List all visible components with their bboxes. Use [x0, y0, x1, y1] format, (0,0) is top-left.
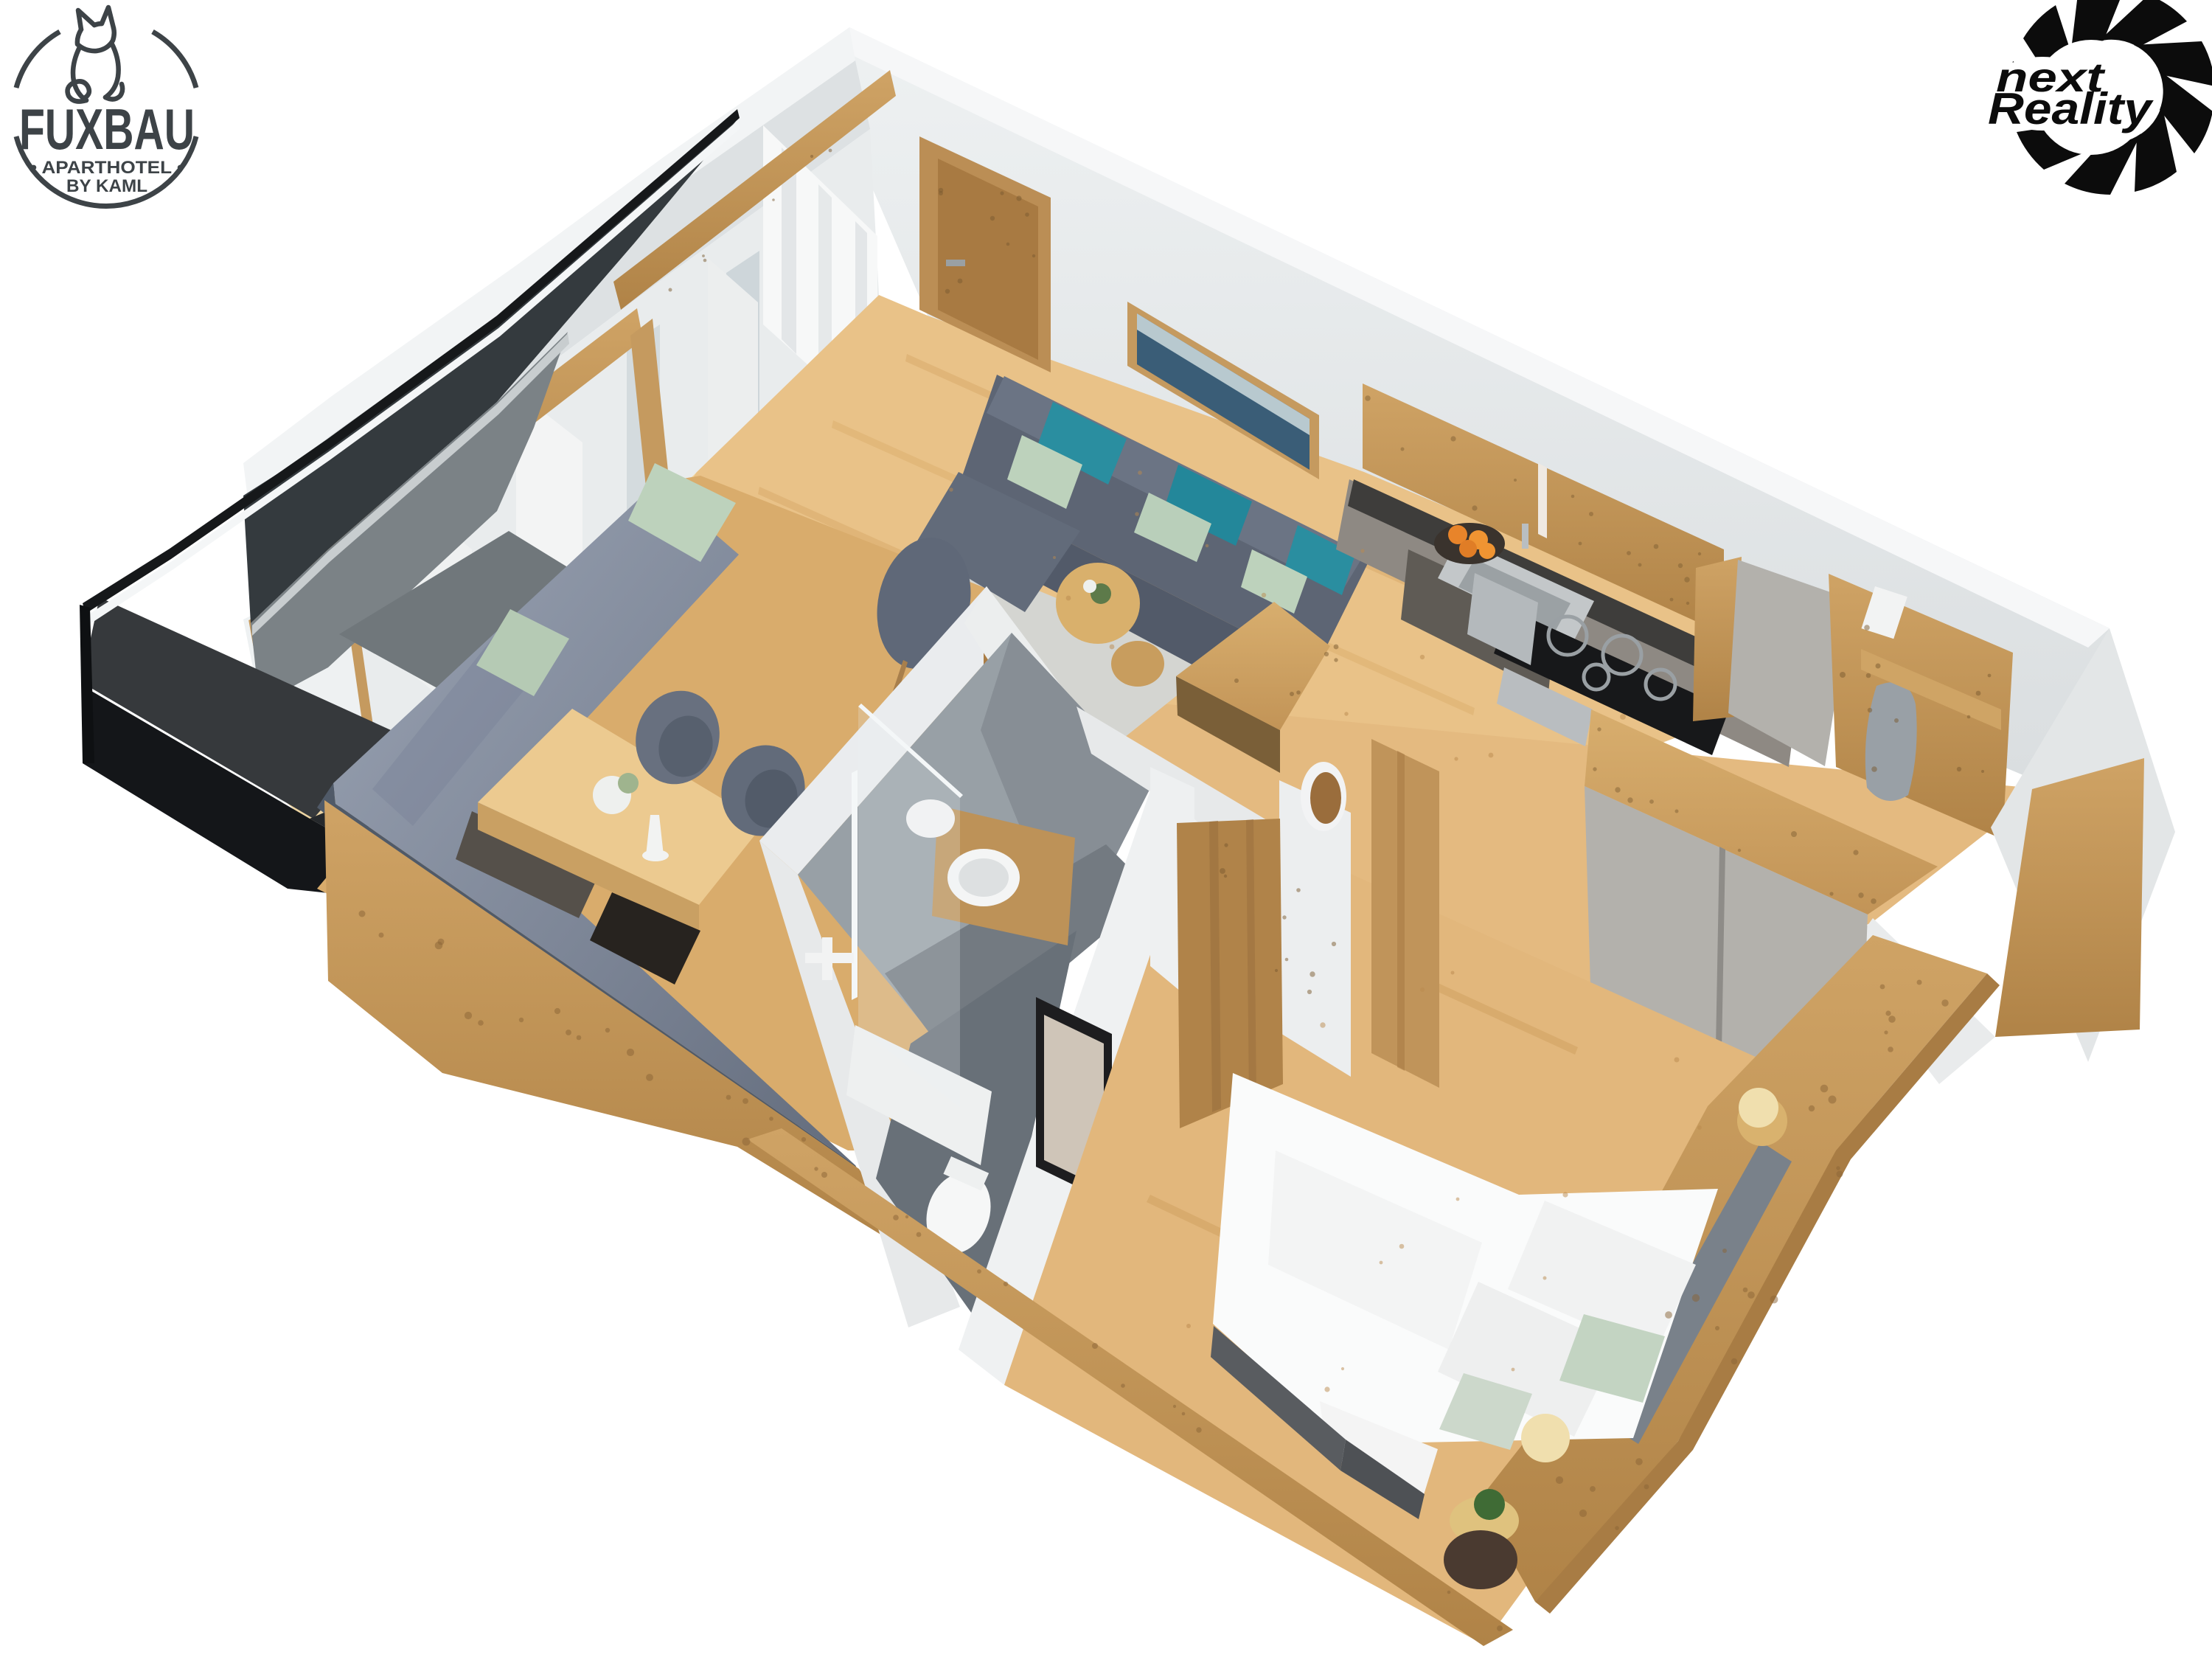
svg-text:FUXBAU: FUXBAU [19, 97, 195, 162]
svg-text:Reality: Reality [1988, 84, 2154, 133]
svg-text:BY KAML: BY KAML [66, 176, 147, 196]
svg-text:• APARTHOTEL •: • APARTHOTEL • [30, 158, 184, 178]
